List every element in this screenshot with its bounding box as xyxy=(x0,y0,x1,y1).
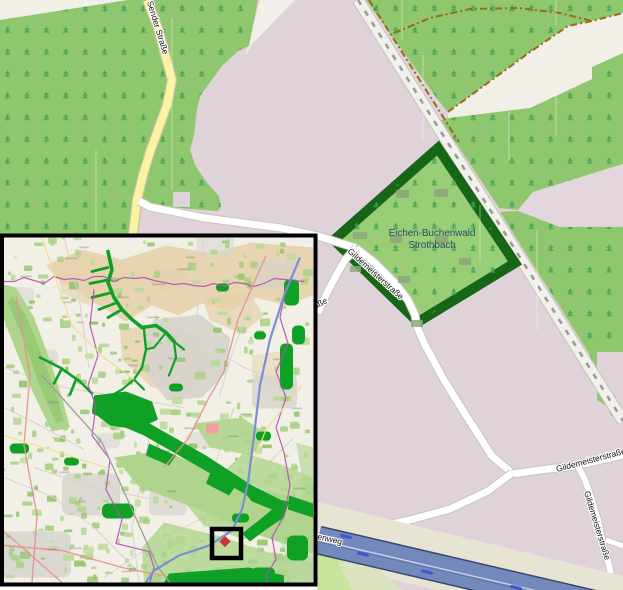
svg-text:Strothbach: Strothbach xyxy=(408,240,455,251)
svg-text:Eichen-Buchenwald: Eichen-Buchenwald xyxy=(389,228,476,239)
